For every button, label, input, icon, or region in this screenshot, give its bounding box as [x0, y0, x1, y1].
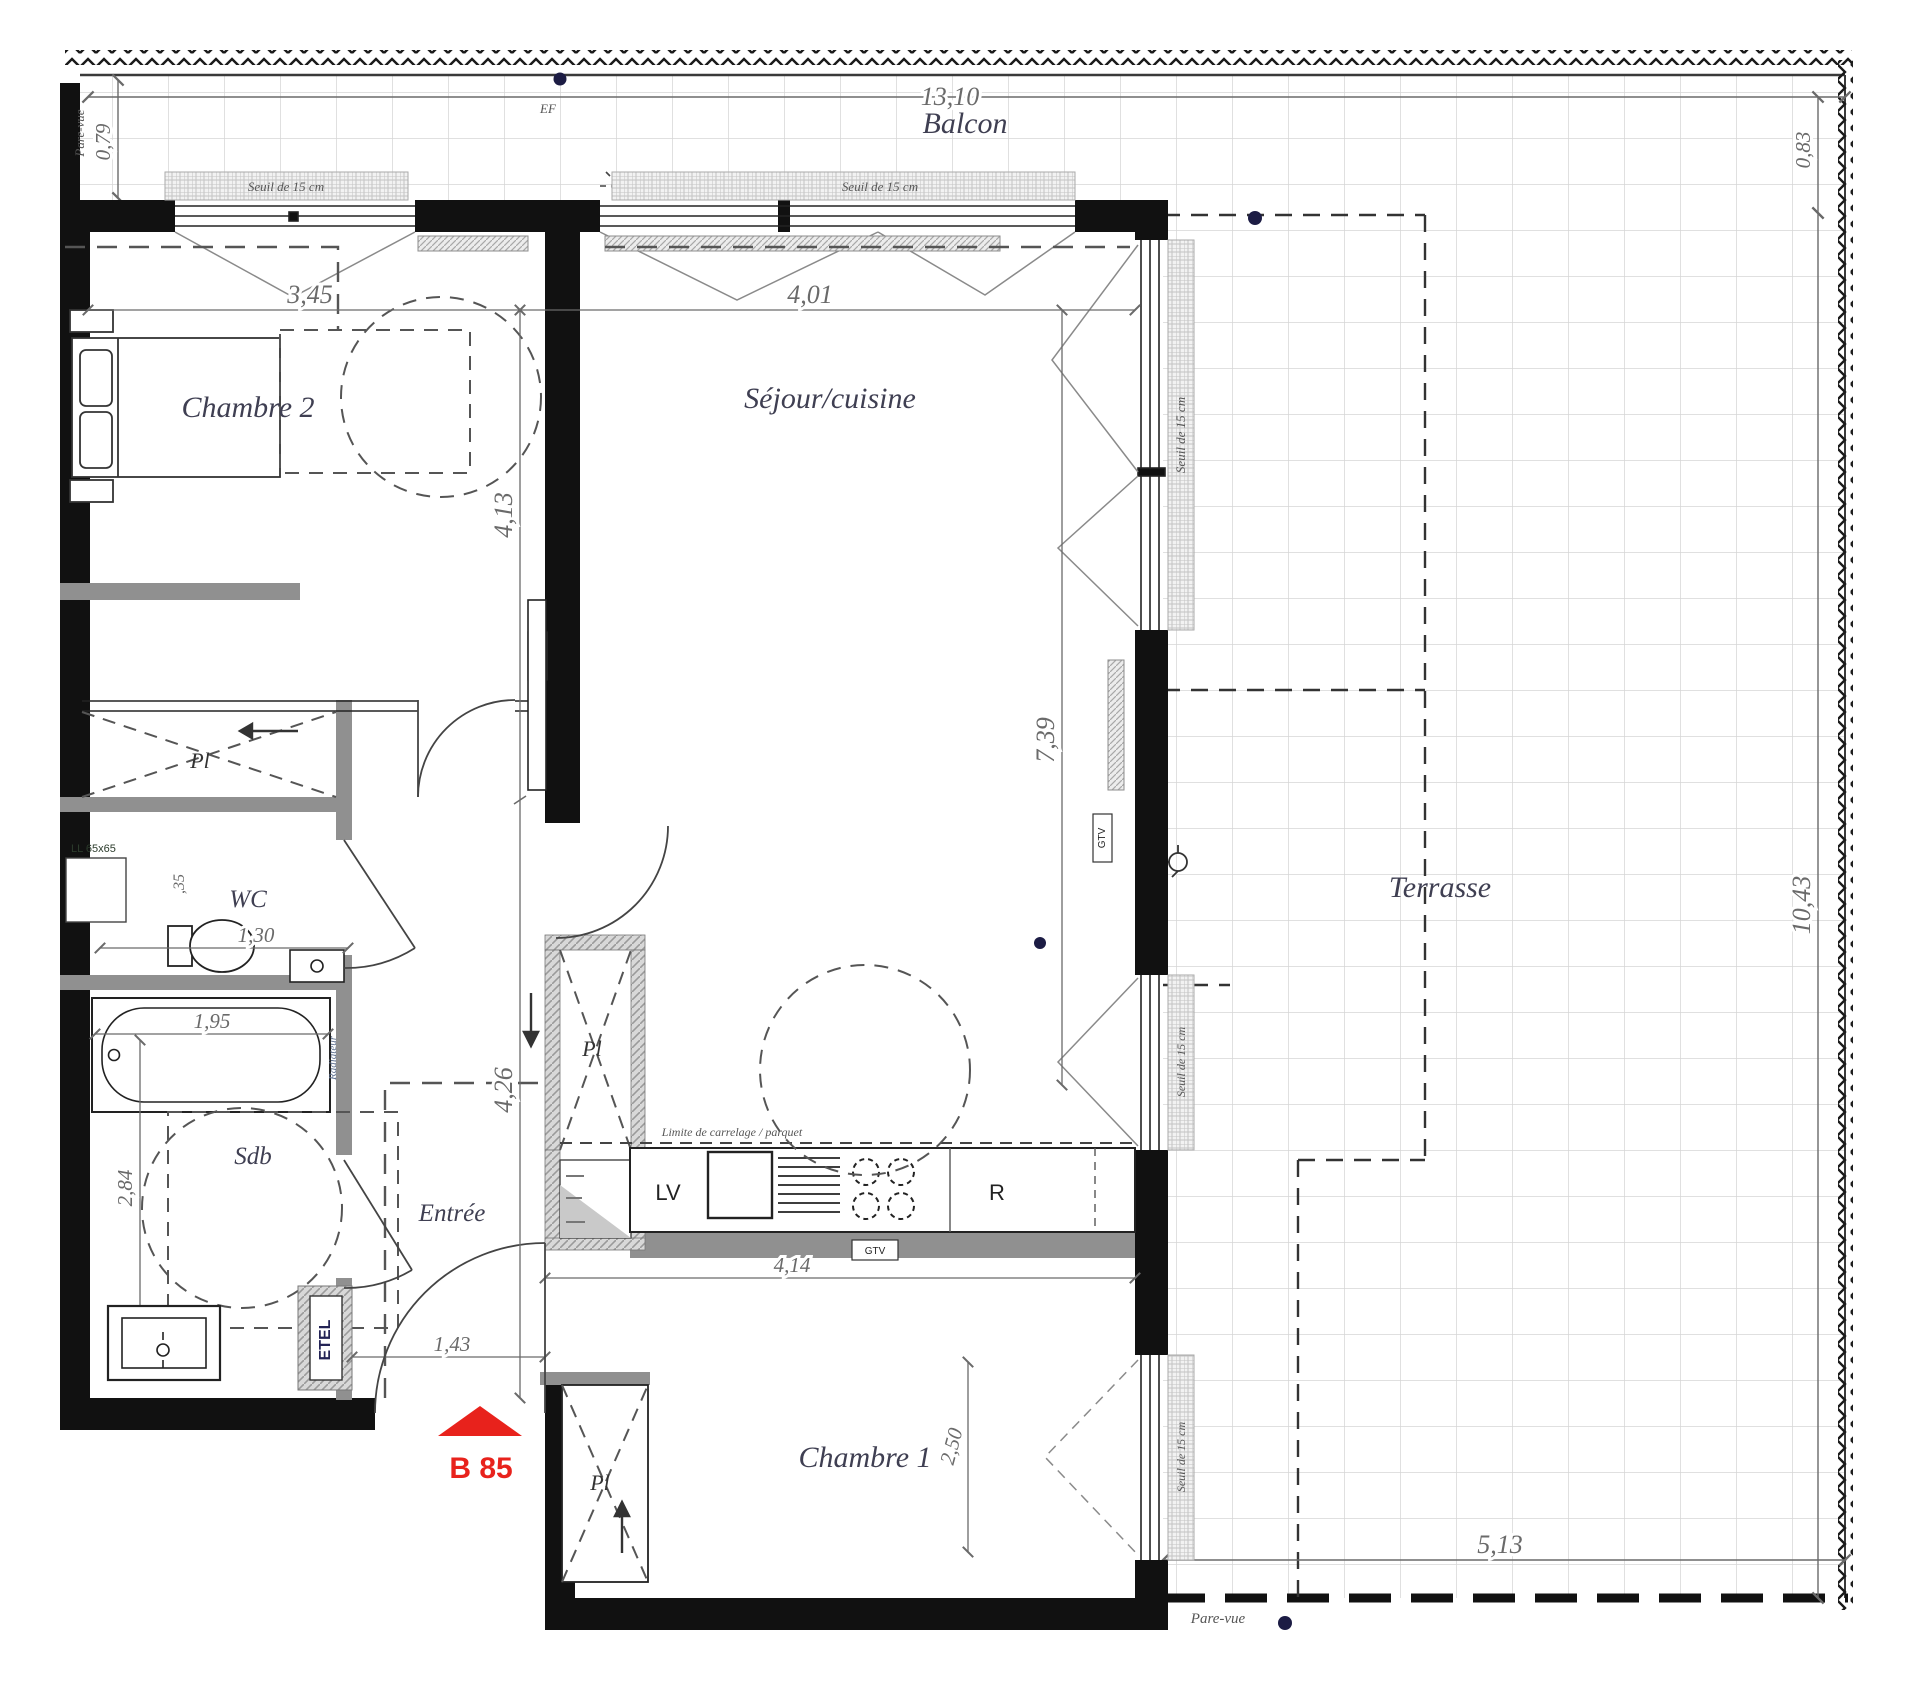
gtv-vertical-boxes: GTV GTV	[528, 632, 1112, 862]
pare-vue-left-label: Pare-vue	[72, 109, 87, 157]
floorplan-page: EF Balcon Terrasse Pare-vue 13,10 0,79 P…	[0, 0, 1920, 1697]
dim-4-26: 4,26	[489, 1067, 518, 1113]
dim-1-30: 1,30	[238, 923, 275, 947]
doors	[344, 600, 668, 1413]
gtv-label-1: GTV	[865, 1246, 886, 1257]
closet-chambre1-label: Pl	[589, 1470, 610, 1495]
entree-arrow-down-icon	[524, 993, 538, 1046]
seuil-label-5: Seuil de 15 cm	[1174, 1422, 1188, 1493]
dim-13-10: 13,10	[921, 82, 980, 111]
dim-4-14: 4,14	[774, 1253, 811, 1277]
pare-vue-bottom-label: Pare-vue	[1190, 1611, 1246, 1627]
sdb-label: Sdb	[234, 1143, 272, 1170]
ef-point	[554, 73, 567, 86]
ef-label: EF	[539, 101, 557, 116]
limite-carrelage-label: Limite de carrelage / parquet	[661, 1125, 803, 1139]
gtv-label-3: GTV	[1097, 827, 1108, 848]
dim-7-39: 7,39	[1031, 717, 1060, 763]
dim-5-13: 5,13	[1477, 1530, 1523, 1559]
chambre2-room: Chambre 2	[65, 247, 1130, 502]
wc-label: WC	[229, 886, 267, 913]
door-chambre2	[418, 700, 515, 797]
dim-0-79: 0,79	[91, 123, 115, 160]
door-sdb	[344, 1160, 412, 1288]
dim-10-43: 10,43	[1787, 876, 1816, 935]
kitchen-counter	[630, 1148, 1135, 1232]
closet-hall-label: Pl	[189, 748, 210, 773]
chambre1-room: Pl Chambre 1 2,50	[562, 1362, 968, 1582]
window-chambre1	[1141, 1355, 1159, 1560]
seuil-label-1: Seuil de 15 cm	[248, 179, 324, 194]
zigzag-screen-top	[65, 50, 1852, 65]
turning-circle-sdb	[142, 1108, 342, 1308]
window-sejour-top	[600, 206, 1075, 226]
washing-machine	[66, 858, 126, 922]
radiator-2	[605, 236, 1000, 251]
seuil-label-3: Seuil de 15 cm	[1173, 397, 1188, 473]
hand-basin	[290, 950, 344, 982]
unit-label: B 85	[449, 1452, 512, 1485]
seuil-label-4: Seuil de 15 cm	[1174, 1027, 1188, 1098]
kitchen-sink	[708, 1152, 772, 1218]
closet-hall-arrow-icon	[240, 724, 298, 738]
dim-0-35: ,35	[171, 874, 188, 894]
dim-3-45: 3,45	[286, 280, 333, 309]
window-sejour-east-2	[1141, 975, 1159, 1150]
dim-4-01: 4,01	[787, 280, 833, 309]
radiator-3	[1108, 660, 1124, 790]
zigzag-screen-right	[1838, 60, 1853, 1610]
radiateur-label: Radiateur	[327, 1035, 339, 1081]
turning-circle-chambre2	[341, 297, 541, 497]
terrace-tiles	[1163, 75, 1845, 1598]
kitchen-drainer	[778, 1158, 840, 1212]
window-swing-5	[1045, 1360, 1138, 1555]
dim-0-83: 0,83	[1791, 132, 1815, 169]
washing-machine-label: LL 65x65	[71, 843, 116, 855]
sejour-label: Séjour/cuisine	[744, 382, 916, 415]
dim-1-43: 1,43	[434, 1332, 471, 1356]
chambre1-label: Chambre 1	[798, 1441, 931, 1474]
entree-area: Entrée 1,43	[352, 993, 545, 1398]
floorplan-drawing: EF Balcon Terrasse Pare-vue 13,10 0,79 P…	[0, 0, 1920, 1697]
closet-kitchen-label: Pl	[581, 1036, 602, 1061]
entree-label: Entrée	[418, 1200, 486, 1227]
outdoor-areas: EF Balcon Terrasse Pare-vue	[65, 50, 1853, 1630]
dim-2-50: 2,50	[935, 1425, 968, 1467]
seuil-label-2: Seuil de 15 cm	[842, 179, 918, 194]
terrace-label: Terrasse	[1389, 871, 1491, 904]
dishwasher-label: LV	[655, 1180, 681, 1205]
window-swing-4	[1058, 978, 1138, 1146]
fridge-label: R	[989, 1180, 1005, 1205]
terrace-point-2	[1034, 937, 1046, 949]
window-sejour-east-1	[1138, 240, 1165, 630]
balcony-label: Balcon	[923, 107, 1008, 140]
wash-basin	[108, 1306, 220, 1380]
clearance-rect-sdb	[168, 1112, 398, 1328]
window-swing-3a	[1052, 245, 1138, 472]
window-chambre2	[175, 206, 415, 226]
window-swing-3b	[1058, 476, 1138, 626]
etel-label: ETEL	[317, 1319, 334, 1360]
door-wc	[344, 840, 415, 968]
terrace-point-3	[1278, 1616, 1292, 1630]
chambre2-label: Chambre 2	[181, 391, 314, 424]
dim-4-13: 4,13	[489, 492, 518, 538]
radiator-1	[418, 236, 528, 251]
unit-arrow-icon	[438, 1406, 522, 1436]
terrace-point-1	[1248, 211, 1262, 225]
unit-marker: B 85	[438, 1406, 522, 1485]
dim-1-95: 1,95	[194, 1009, 231, 1033]
dim-2-84: 2,84	[113, 1169, 137, 1206]
